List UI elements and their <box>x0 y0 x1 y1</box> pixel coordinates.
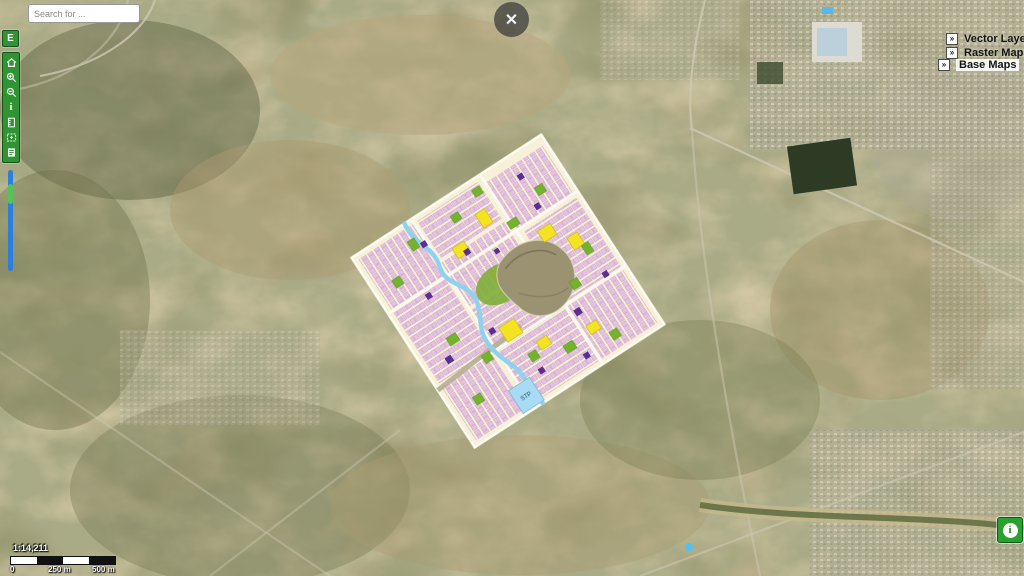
layer-label-base-maps[interactable]: Base Maps <box>956 59 1019 71</box>
zoom-out-button[interactable] <box>3 85 19 100</box>
layers-row-vector: » Vector Layers <box>946 33 1024 45</box>
expand-arrow-icon[interactable]: » <box>946 33 958 45</box>
layers-row-raster: » Raster Maps <box>946 47 1024 59</box>
map-application: STP <box>0 0 1024 576</box>
search-input[interactable] <box>28 4 140 23</box>
measure-button[interactable] <box>3 115 19 130</box>
select-extent-button[interactable] <box>3 130 19 145</box>
satellite-basemap: STP <box>0 0 1024 576</box>
info-circle-icon: i <box>1003 523 1018 538</box>
expand-arrow-icon[interactable]: » <box>938 59 950 71</box>
home-icon <box>6 57 17 68</box>
map-canvas[interactable]: STP <box>0 0 1024 576</box>
zoom-out-icon <box>6 87 17 98</box>
scale-tick: 250 m <box>48 565 71 574</box>
map-toolbar: i <box>2 52 20 163</box>
scale-bar <box>10 556 116 565</box>
layers-row-base: » Base Maps <box>938 59 1019 71</box>
measure-icon <box>6 117 17 128</box>
edit-mode-button[interactable]: E <box>2 30 19 47</box>
identify-button[interactable]: i <box>3 100 19 115</box>
close-button[interactable]: ✕ <box>494 2 529 37</box>
scale-tick: 0 <box>10 565 14 574</box>
export-icon <box>6 147 17 158</box>
export-button[interactable] <box>3 145 19 160</box>
zoom-in-button[interactable] <box>3 70 19 85</box>
expand-arrow-icon[interactable]: » <box>946 47 958 59</box>
zoom-slider-thumb[interactable] <box>8 184 13 204</box>
scale-tick: 500 m <box>92 565 115 574</box>
layer-label-vector-layers[interactable]: Vector Layers <box>964 33 1024 45</box>
info-icon: i <box>9 102 12 113</box>
scale-ratio: 1:14,211 <box>13 543 48 553</box>
select-extent-icon <box>6 132 17 143</box>
zoom-in-icon <box>6 72 17 83</box>
home-button[interactable] <box>3 55 19 70</box>
close-icon: ✕ <box>505 10 518 30</box>
zoom-slider[interactable] <box>8 170 13 271</box>
about-button[interactable]: i <box>997 517 1023 543</box>
layer-label-raster-maps[interactable]: Raster Maps <box>964 47 1024 59</box>
